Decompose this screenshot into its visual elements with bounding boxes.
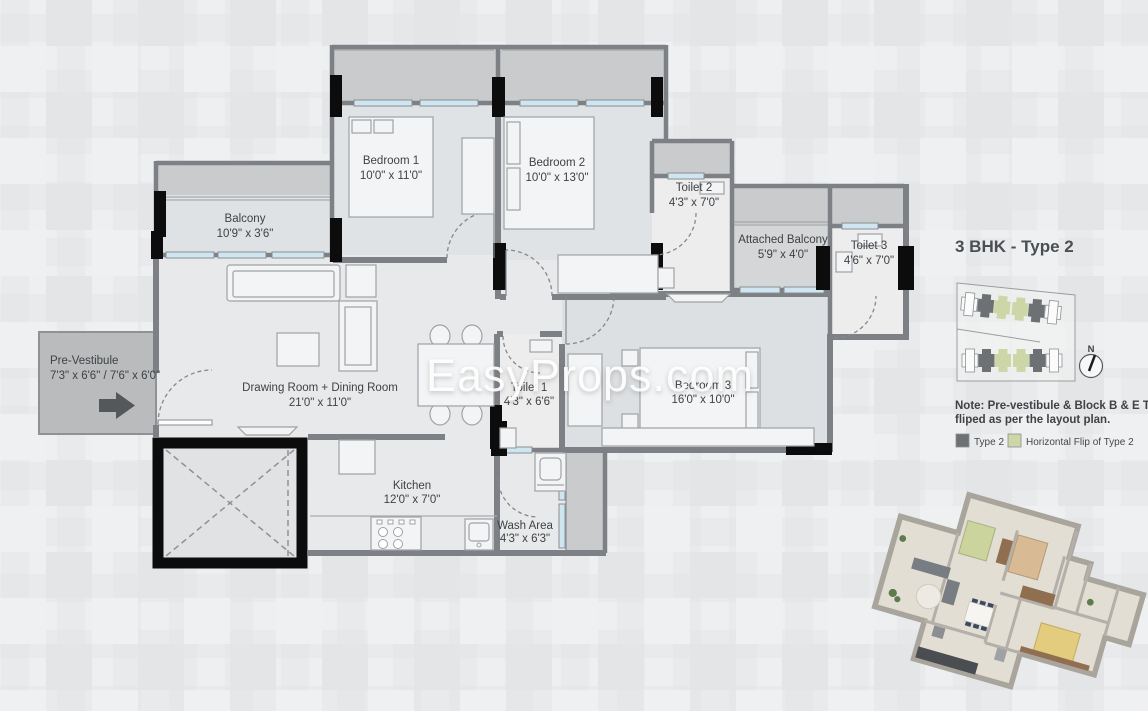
north-arrow: N [1080, 344, 1103, 378]
note-line1: Note: Pre-vestibule & Block B & E Toilet… [955, 400, 1148, 412]
shaft [158, 443, 302, 563]
bedroom2-label: Bedroom 2 [529, 157, 585, 169]
toilet2-dims: 4'3" x 7'0" [669, 197, 719, 209]
bedroom3-dims: 16'0" x 10'0" [671, 394, 734, 406]
bedroom3-label: Bedroom 3 [675, 380, 731, 392]
render-3d [864, 478, 1148, 711]
balcony-dims: 10'9" x 3'6" [217, 228, 274, 240]
legend-swatch-type2 [956, 434, 969, 447]
floor-plan-svg: Balcony 10'9" x 3'6" Bedroom 1 10'0" x 1… [0, 0, 1148, 711]
note-line2: fliped as per the layout plan. [955, 414, 1110, 426]
attached-balcony-dims: 5'9" x 4'0" [758, 249, 808, 261]
bedroom1-dims: 10'0" x 11'0" [360, 170, 422, 182]
wash-area-dims: 4'3" x 6'3" [500, 533, 550, 545]
key-plan [957, 283, 1075, 381]
legend-label-type2: Type 2 [974, 437, 1004, 448]
balcony-label: Balcony [225, 213, 266, 225]
kitchen-dims: 12'0" x 7'0" [384, 494, 441, 506]
note: Note: Pre-vestibule & Block B & E Toilet… [955, 400, 1148, 426]
plan-title: 3 BHK - Type 2 [955, 237, 1074, 256]
drawing-dining-dims: 21'0" x 11'0" [289, 397, 351, 409]
bedroom1-label: Bedroom 1 [363, 155, 419, 167]
pre-vestibule-dims: 7'3" x 6'6" / 7'6" x 6'0" [50, 370, 160, 382]
legend: Type 2 Horizontal Flip of Type 2 [956, 434, 1134, 448]
bedroom2-dims: 10'0" x 13'0" [525, 172, 588, 184]
north-label: N [1088, 344, 1095, 355]
toilet2-label: Toilet 2 [676, 182, 712, 194]
wash-area-label: Wash Area [497, 520, 553, 532]
toilet3-dims: 4'6" x 7'0" [844, 255, 894, 267]
toilet1-dims: 4'3" x 6'6" [504, 396, 554, 408]
pre-vestibule-label: Pre-Vestibule [50, 355, 118, 367]
toilet1-label: Toilet 1 [511, 382, 547, 394]
drawing-dining-label: Drawing Room + Dining Room [242, 382, 398, 394]
toilet3-label: Toilet 3 [851, 240, 887, 252]
legend-label-flip: Horizontal Flip of Type 2 [1026, 437, 1134, 448]
pre-vestibule [39, 332, 156, 434]
kitchen-label: Kitchen [393, 480, 431, 492]
attached-balcony-label: Attached Balcony [738, 234, 828, 246]
legend-swatch-flip [1008, 434, 1021, 447]
floor-plan-page: Balcony 10'9" x 3'6" Bedroom 1 10'0" x 1… [0, 0, 1148, 711]
